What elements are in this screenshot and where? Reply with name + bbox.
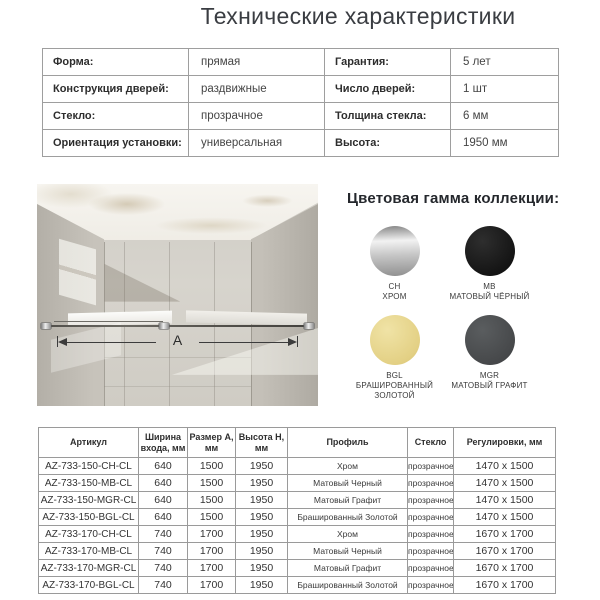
spec-value: 1 шт [451, 76, 559, 103]
model-row: AZ-733-170-CH-CL74017001950Хромпрозрачно… [39, 526, 556, 543]
model-row: AZ-733-150-BGL-CL64015001950Брашированны… [39, 509, 556, 526]
swatch-mb: MBМАТОВЫЙ ЧЁРНЫЙ [442, 226, 537, 302]
dimension-label: A [37, 332, 318, 348]
model-cell: 1670 x 1700 [454, 560, 556, 577]
swatch-circle-icon [370, 226, 420, 276]
model-cell: прозрачное [408, 560, 454, 577]
model-cell: 640 [139, 475, 188, 492]
swatch-ch: CHХРОМ [347, 226, 442, 302]
spec-label: Стекло: [43, 103, 189, 130]
model-cell: AZ-733-170-MGR-CL [39, 560, 139, 577]
model-cell: Матовый Графит [288, 560, 408, 577]
model-cell: 740 [139, 543, 188, 560]
model-row: AZ-733-150-MB-CL64015001950Матовый Черны… [39, 475, 556, 492]
model-cell: Матовый Графит [288, 492, 408, 509]
model-cell: 1500 [188, 458, 236, 475]
rail-bracket [41, 323, 51, 329]
model-cell: 1470 x 1500 [454, 509, 556, 526]
model-row: AZ-733-170-MGR-CL74017001950Матовый Граф… [39, 560, 556, 577]
model-cell: Брашированный Золотой [288, 509, 408, 526]
model-cell: Хром [288, 458, 408, 475]
rail-bracket [159, 323, 169, 329]
model-cell: Матовый Черный [288, 475, 408, 492]
spec-value: прямая [189, 49, 325, 76]
model-cell: 1700 [188, 560, 236, 577]
model-cell: 1470 x 1500 [454, 475, 556, 492]
model-cell: AZ-733-170-CH-CL [39, 526, 139, 543]
model-cell: AZ-733-150-CH-CL [39, 458, 139, 475]
swatch-grid: CHХРОМMBМАТОВЫЙ ЧЁРНЫЙBGLБРАШИРОВАННЫЙ З… [347, 226, 567, 401]
model-cell: 740 [139, 560, 188, 577]
model-cell: 1950 [236, 526, 288, 543]
model-table: АртикулШирина входа, ммРазмер A, ммВысот… [38, 427, 556, 594]
swatch-label: BGLБРАШИРОВАННЫЙ ЗОЛОТОЙ [347, 371, 442, 401]
column-header: Регулировки, мм [454, 428, 556, 458]
model-cell: AZ-733-170-BGL-CL [39, 577, 139, 594]
model-cell: 1950 [236, 560, 288, 577]
model-cell: 1670 x 1700 [454, 543, 556, 560]
spec-value: раздвижные [189, 76, 325, 103]
color-palette: Цветовая гамма коллекции: CHХРОМMBМАТОВЫ… [347, 190, 567, 401]
model-cell: 1700 [188, 526, 236, 543]
model-cell: Матовый Черный [288, 543, 408, 560]
model-cell: прозрачное [408, 509, 454, 526]
spec-label: Высота: [325, 130, 451, 157]
product-render: A [37, 184, 318, 406]
palette-heading: Цветовая гамма коллекции: [347, 190, 567, 207]
spec-label: Форма: [43, 49, 189, 76]
swatch-label: CHХРОМ [347, 282, 442, 302]
shower-tray-right [186, 310, 307, 325]
model-cell: 1470 x 1500 [454, 458, 556, 475]
model-cell: прозрачное [408, 475, 454, 492]
swatch-label: MGRМАТОВЫЙ ГРАФИТ [442, 371, 537, 391]
spec-sheet: Технические характеристики Форма:прямаяГ… [0, 0, 600, 600]
model-cell: 640 [139, 492, 188, 509]
model-cell: AZ-733-150-MB-CL [39, 475, 139, 492]
column-header: Ширина входа, мм [139, 428, 188, 458]
rail-bracket [304, 323, 314, 329]
spec-row: Стекло:прозрачноеТолщина стекла:6 мм [43, 103, 559, 130]
model-cell: 640 [139, 458, 188, 475]
spec-value: 1950 мм [451, 130, 559, 157]
tile-seam [104, 386, 250, 387]
model-row: AZ-733-150-CH-CL64015001950Хромпрозрачно… [39, 458, 556, 475]
model-cell: 1700 [188, 543, 236, 560]
spec-label: Число дверей: [325, 76, 451, 103]
swatch-circle-icon [465, 226, 515, 276]
model-cell: 1700 [188, 577, 236, 594]
spec-row: Форма:прямаяГарантия:5 лет [43, 49, 559, 76]
glass-door-edge [54, 321, 164, 322]
spec-table: Форма:прямаяГарантия:5 летКонструкция дв… [42, 48, 559, 157]
page-title: Технические характеристики [0, 3, 600, 30]
model-cell: 1950 [236, 543, 288, 560]
model-cell: 1950 [236, 577, 288, 594]
column-header: Профиль [288, 428, 408, 458]
column-header: Размер A, мм [188, 428, 236, 458]
model-cell: прозрачное [408, 526, 454, 543]
spec-value: 6 мм [451, 103, 559, 130]
spec-label: Конструкция дверей: [43, 76, 189, 103]
spec-label: Ориентация установки: [43, 130, 189, 157]
model-cell: AZ-733-150-BGL-CL [39, 509, 139, 526]
spec-label: Гарантия: [325, 49, 451, 76]
spec-row: Ориентация установки:универсальнаяВысота… [43, 130, 559, 157]
swatch-circle-icon [370, 315, 420, 365]
model-cell: Брашированный Золотой [288, 577, 408, 594]
model-cell: 1950 [236, 458, 288, 475]
spec-value: прозрачное [189, 103, 325, 130]
spec-row: Конструкция дверей:раздвижныеЧисло двере… [43, 76, 559, 103]
model-cell: AZ-733-150-MGR-CL [39, 492, 139, 509]
swatch-bgl: BGLБРАШИРОВАННЫЙ ЗОЛОТОЙ [347, 315, 442, 401]
spec-value: 5 лет [451, 49, 559, 76]
model-cell: Хром [288, 526, 408, 543]
window-light [59, 239, 96, 305]
model-row: AZ-733-170-MB-CL74017001950Матовый Черны… [39, 543, 556, 560]
swatch-mgr: MGRМАТОВЫЙ ГРАФИТ [442, 315, 537, 401]
model-cell: 1950 [236, 509, 288, 526]
spec-value: универсальная [189, 130, 325, 157]
swatch-label: MBМАТОВЫЙ ЧЁРНЫЙ [442, 282, 537, 302]
model-cell: 1950 [236, 492, 288, 509]
model-row: AZ-733-150-MGR-CL64015001950Матовый Граф… [39, 492, 556, 509]
model-cell: прозрачное [408, 458, 454, 475]
swatch-circle-icon [465, 315, 515, 365]
model-cell: AZ-733-170-MB-CL [39, 543, 139, 560]
model-cell: 1950 [236, 475, 288, 492]
model-cell: 1670 x 1700 [454, 577, 556, 594]
model-row: AZ-733-170-BGL-CL74017001950Брашированны… [39, 577, 556, 594]
model-cell: 1670 x 1700 [454, 526, 556, 543]
model-cell: 640 [139, 509, 188, 526]
shower-rail [44, 325, 311, 327]
column-header: Высота H, мм [236, 428, 288, 458]
model-cell: 1500 [188, 492, 236, 509]
model-cell: 1500 [188, 475, 236, 492]
spec-label: Толщина стекла: [325, 103, 451, 130]
model-cell: 1470 x 1500 [454, 492, 556, 509]
column-header: Артикул [39, 428, 139, 458]
model-cell: прозрачное [408, 543, 454, 560]
model-table-header: АртикулШирина входа, ммРазмер A, ммВысот… [39, 428, 556, 458]
column-header: Стекло [408, 428, 454, 458]
model-cell: прозрачное [408, 492, 454, 509]
model-cell: 1500 [188, 509, 236, 526]
model-cell: 740 [139, 526, 188, 543]
model-cell: 740 [139, 577, 188, 594]
tile-seam [214, 242, 215, 406]
model-cell: прозрачное [408, 577, 454, 594]
